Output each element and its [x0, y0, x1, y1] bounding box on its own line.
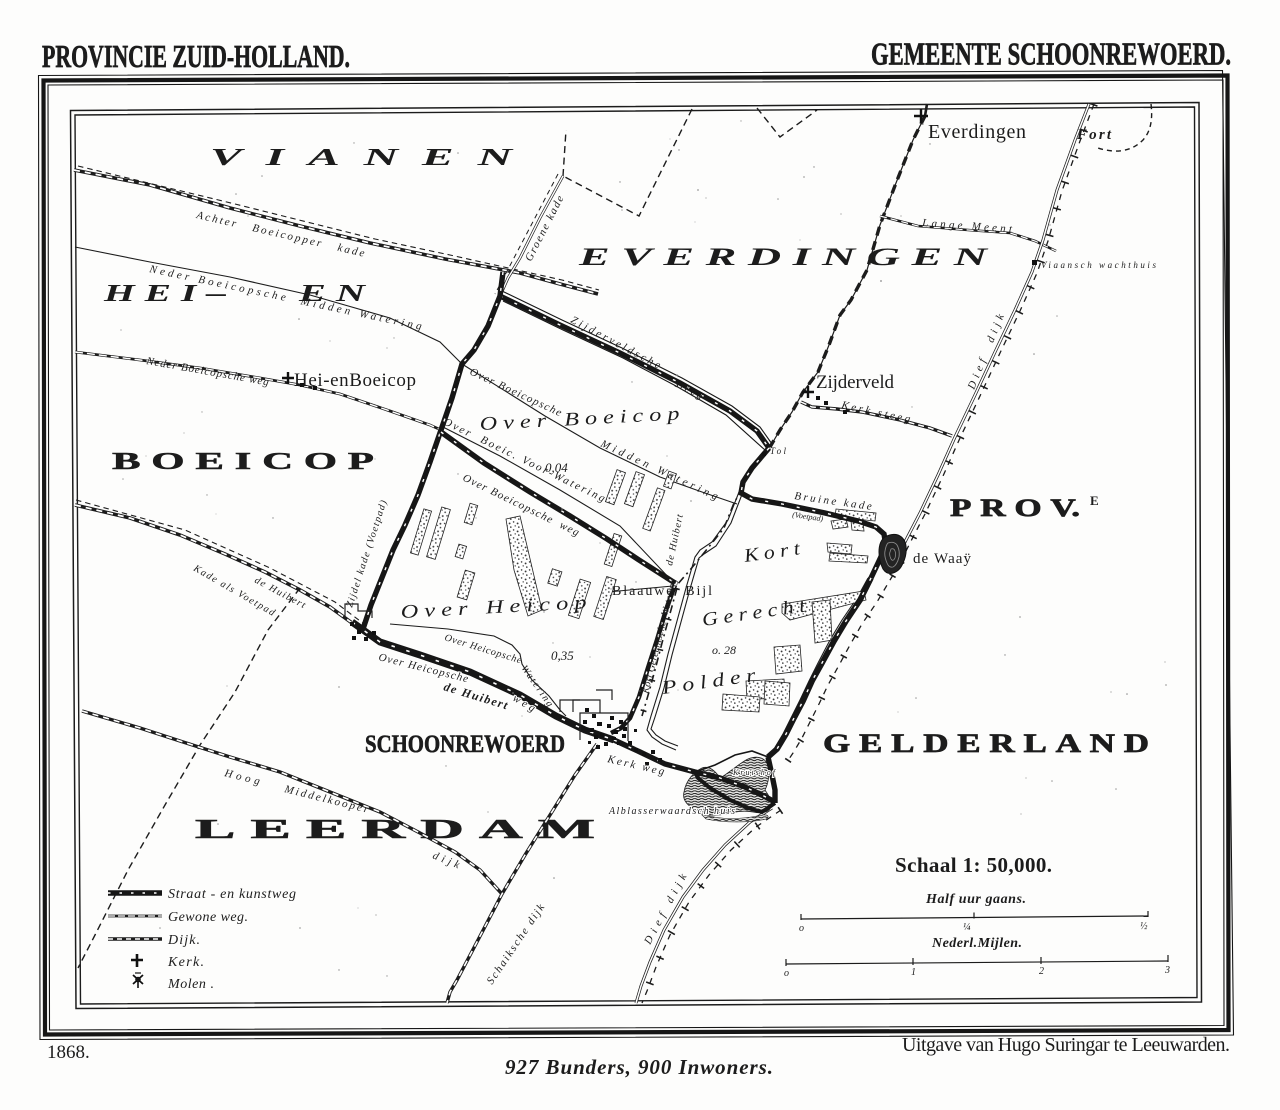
svg-text:Fort: Fort: [1076, 127, 1112, 143]
svg-text:Tol: Tol: [770, 446, 786, 456]
svg-text:¼: ¼: [963, 922, 971, 933]
svg-text:G E L D E R L A N D: G E L D E R L A N D: [823, 729, 1149, 758]
svg-text:1: 1: [911, 967, 916, 978]
svg-text:o: o: [799, 923, 804, 934]
svg-text:de Waaÿ: de Waaÿ: [913, 551, 972, 567]
svg-text:Half uur gaans.: Half uur gaans.: [925, 892, 1026, 907]
svg-text:½: ½: [1140, 921, 1148, 932]
svg-text:Zijderveld: Zijderveld: [816, 372, 895, 393]
svg-text:E V E R D I N G E N: E V E R D I N G E N: [577, 244, 989, 271]
svg-text:Everdingen: Everdingen: [928, 121, 1026, 143]
svg-text:Gewone weg.: Gewone weg.: [168, 910, 248, 925]
svg-text:Straat - en kunstweg: Straat - en kunstweg: [168, 887, 296, 902]
svg-text:E: E: [1090, 493, 1099, 508]
svg-text:1868.: 1868.: [47, 1042, 90, 1063]
svg-text:P R O V.: P R O V.: [950, 495, 1080, 522]
svg-text:3: 3: [1164, 965, 1170, 976]
svg-text:B O E I C O P: B O E I C O P: [112, 449, 374, 475]
svg-text:Dijk.: Dijk.: [167, 933, 200, 948]
svg-text:Nederl.Mijlen.: Nederl.Mijlen.: [931, 936, 1022, 951]
svg-text:Alblasserwaardsch huis: Alblasserwaardsch huis: [608, 806, 735, 817]
svg-text:Schaal 1: 50,000.: Schaal 1: 50,000.: [895, 853, 1053, 877]
svg-text:2: 2: [1039, 966, 1044, 977]
svg-text:Kerk.: Kerk.: [167, 955, 204, 970]
svg-text:Blaauwe Bijl: Blaauwe Bijl: [612, 584, 712, 599]
svg-text:Molen .: Molen .: [167, 977, 214, 992]
svg-text:SCHOONREWOERD: SCHOONREWOERD: [365, 730, 565, 758]
svg-text:o: o: [784, 968, 789, 979]
svg-text:Hei-enBoeicop: Hei-enBoeicop: [294, 370, 416, 391]
svg-text:PROVINCIE ZUID-HOLLAND.: PROVINCIE ZUID-HOLLAND.: [42, 40, 350, 75]
svg-text:0,35: 0,35: [551, 648, 574, 663]
svg-text:927 Bunders, 900 Inwoners.: 927 Bunders, 900 Inwoners.: [505, 1055, 773, 1079]
svg-text:0,04: 0,04: [545, 460, 568, 475]
svg-text:GEMEENTE SCHOONREWOERD.: GEMEENTE SCHOONREWOERD.: [871, 38, 1231, 73]
svg-text:o. 28: o. 28: [712, 643, 736, 657]
svg-text:Uitgave van Hugo Suringar te L: Uitgave van Hugo Suringar te Leeuwarden.: [902, 1034, 1230, 1056]
svg-text:V I A N E N: V I A N E N: [210, 145, 515, 171]
